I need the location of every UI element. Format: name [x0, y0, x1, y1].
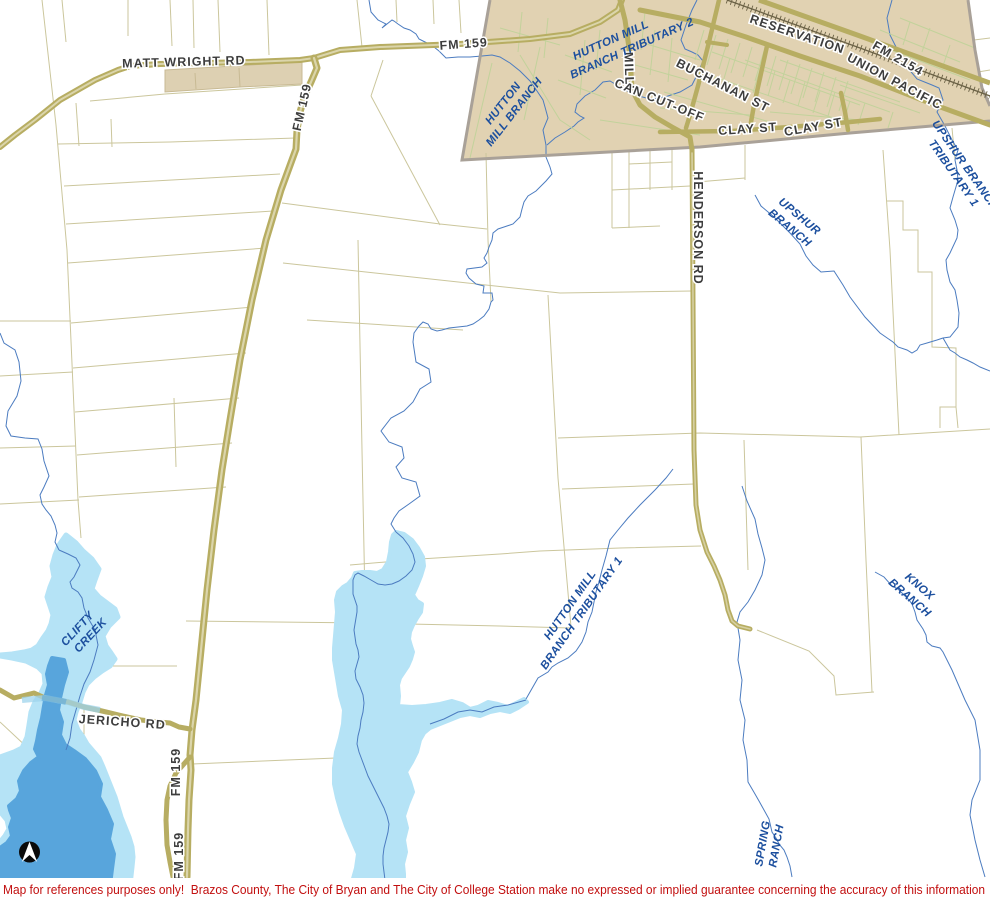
svg-text:Map for references purposes on: Map for references purposes only! Brazos… — [3, 882, 985, 897]
svg-text:FM 159: FM 159 — [172, 832, 186, 880]
svg-text:HENDERSON RD: HENDERSON RD — [691, 171, 705, 284]
svg-text:FM 159: FM 159 — [169, 748, 183, 796]
